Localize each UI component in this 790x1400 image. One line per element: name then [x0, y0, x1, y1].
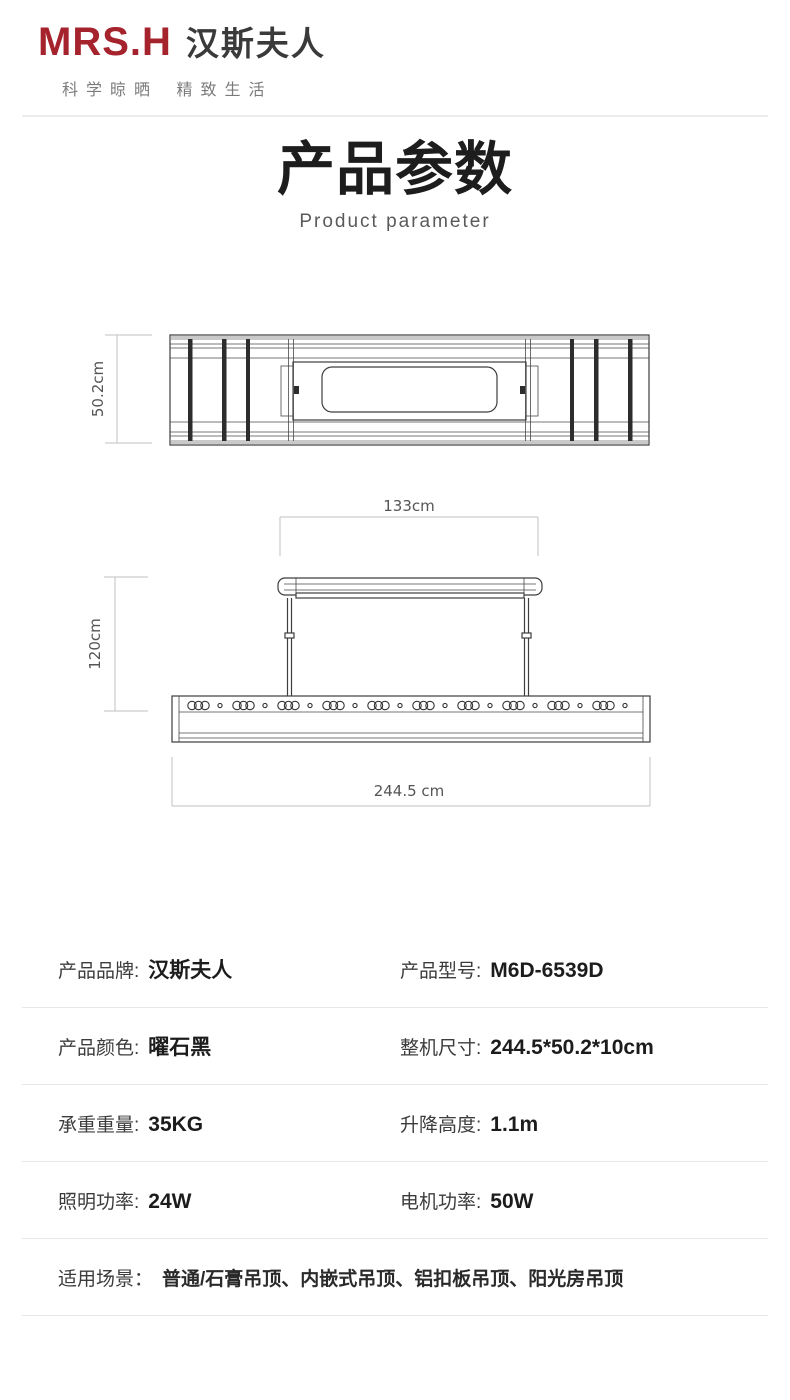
spec-scenes: 适用场景： 普通/石膏吊顶、内嵌式吊顶、铝扣板吊顶、阳光房吊顶	[58, 1264, 768, 1291]
dim-depth-label: 50.2cm	[89, 361, 107, 417]
spec-label: 照明功率:	[58, 1187, 139, 1214]
spec-value: M6D-6539D	[490, 959, 603, 983]
dim-total-width-label: 244.5 cm	[374, 782, 445, 800]
front-view-body	[172, 696, 650, 742]
dim-depth: 50.2cm	[89, 335, 152, 443]
brand-tagline: 科学晾晒 精致生活	[62, 76, 326, 100]
dim-mount-width: 133cm	[280, 497, 538, 556]
spec-motor-power: 电机功率: 50W	[400, 1187, 768, 1214]
spec-brand: 产品品牌: 汉斯夫人	[58, 954, 400, 984]
spec-label: 整机尺寸:	[400, 1033, 481, 1060]
spec-light-power: 照明功率: 24W	[58, 1187, 400, 1214]
spec-value: 普通/石膏吊顶、内嵌式吊顶、铝扣板吊顶、阳光房吊顶	[162, 1264, 623, 1291]
spec-value: 50W	[490, 1190, 533, 1214]
spec-label: 产品型号:	[400, 956, 481, 983]
page-title: 产品参数	[0, 140, 790, 201]
header-divider	[22, 115, 768, 117]
dim-total-width: 244.5 cm	[172, 757, 650, 806]
spec-row-1: 产品品牌: 汉斯夫人 产品型号: M6D-6539D	[22, 931, 768, 1008]
spec-label: 承重重量:	[58, 1110, 139, 1137]
spec-value: 35KG	[148, 1113, 203, 1137]
spec-row-4: 照明功率: 24W 电机功率: 50W	[22, 1162, 768, 1239]
spec-value: 24W	[148, 1190, 191, 1214]
spec-label: 升降高度:	[400, 1110, 481, 1137]
spec-color: 产品颜色: 曜石黑	[58, 1031, 400, 1061]
dim-drop-height-label: 120cm	[86, 618, 104, 670]
spec-value: 244.5*50.2*10cm	[490, 1036, 653, 1060]
spec-row-5: 适用场景： 普通/石膏吊顶、内嵌式吊顶、铝扣板吊顶、阳光房吊顶	[22, 1239, 768, 1316]
spec-model: 产品型号: M6D-6539D	[400, 956, 768, 983]
spec-value: 1.1m	[490, 1113, 538, 1137]
spec-label: 适用场景：	[58, 1264, 153, 1291]
spec-load: 承重重量: 35KG	[58, 1110, 400, 1137]
brand-logo-cn: 汉斯夫人	[186, 27, 326, 60]
page-subtitle: Product parameter	[0, 211, 790, 233]
spec-label: 产品品牌:	[58, 956, 139, 983]
spec-value: 曜石黑	[148, 1031, 211, 1061]
dim-drop-height: 120cm	[86, 577, 148, 711]
section-title-block: 产品参数 Product parameter	[0, 140, 790, 233]
spec-lift-height: 升降高度: 1.1m	[400, 1110, 768, 1137]
brand-logo-en: MRS.H	[38, 22, 172, 62]
spec-label: 产品颜色:	[58, 1033, 139, 1060]
spec-label: 电机功率:	[400, 1187, 481, 1214]
dim-mount-width-label: 133cm	[383, 497, 435, 515]
spec-size: 整机尺寸: 244.5*50.2*10cm	[400, 1033, 768, 1060]
spec-row-3: 承重重量: 35KG 升降高度: 1.1m	[22, 1085, 768, 1162]
spec-table: 产品品牌: 汉斯夫人 产品型号: M6D-6539D 产品颜色: 曜石黑 整机尺…	[22, 931, 768, 1316]
spec-value: 汉斯夫人	[148, 954, 232, 984]
spec-row-2: 产品颜色: 曜石黑 整机尺寸: 244.5*50.2*10cm	[22, 1008, 768, 1085]
front-view-diagram: 133cm 120cm	[86, 497, 650, 806]
top-view-diagram: 50.2cm	[89, 335, 649, 445]
technical-drawings: 50.2cm	[0, 318, 790, 818]
brand-logo: MRS.H 汉斯夫人 科学晾晒 精致生活	[38, 22, 326, 100]
lift-poles	[285, 598, 531, 696]
